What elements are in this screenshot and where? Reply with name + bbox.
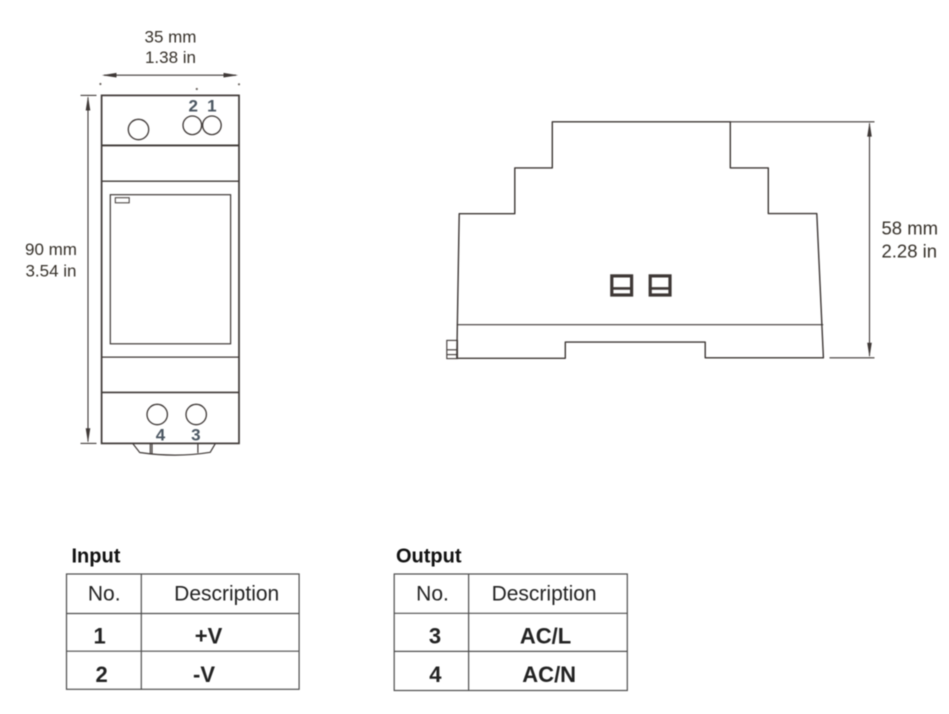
svg-text:+V: +V bbox=[195, 624, 223, 649]
svg-text:35 mm: 35 mm bbox=[145, 28, 197, 47]
svg-text:AC/L: AC/L bbox=[520, 624, 571, 649]
svg-text:-V: -V bbox=[193, 662, 215, 687]
svg-text:AC/N: AC/N bbox=[522, 662, 576, 687]
svg-text:No.: No. bbox=[416, 583, 449, 606]
svg-text:4: 4 bbox=[156, 426, 166, 445]
svg-text:Description: Description bbox=[492, 583, 597, 606]
svg-text:Output: Output bbox=[396, 546, 462, 568]
svg-text:1: 1 bbox=[93, 624, 105, 649]
svg-text:3: 3 bbox=[191, 426, 200, 445]
svg-text:Description: Description bbox=[174, 583, 279, 606]
svg-text:3: 3 bbox=[429, 624, 441, 649]
svg-text:2: 2 bbox=[95, 662, 107, 687]
svg-text:58 mm: 58 mm bbox=[882, 218, 939, 239]
svg-text:2: 2 bbox=[188, 97, 197, 116]
svg-text:No.: No. bbox=[88, 583, 121, 606]
svg-text:1.38 in: 1.38 in bbox=[145, 48, 196, 67]
svg-text:90 mm: 90 mm bbox=[25, 240, 77, 259]
svg-text:4: 4 bbox=[429, 662, 442, 687]
svg-text:2.28 in: 2.28 in bbox=[882, 241, 938, 262]
svg-text:1: 1 bbox=[207, 97, 216, 116]
svg-text:Input: Input bbox=[72, 546, 121, 568]
svg-text:3.54 in: 3.54 in bbox=[25, 262, 76, 281]
